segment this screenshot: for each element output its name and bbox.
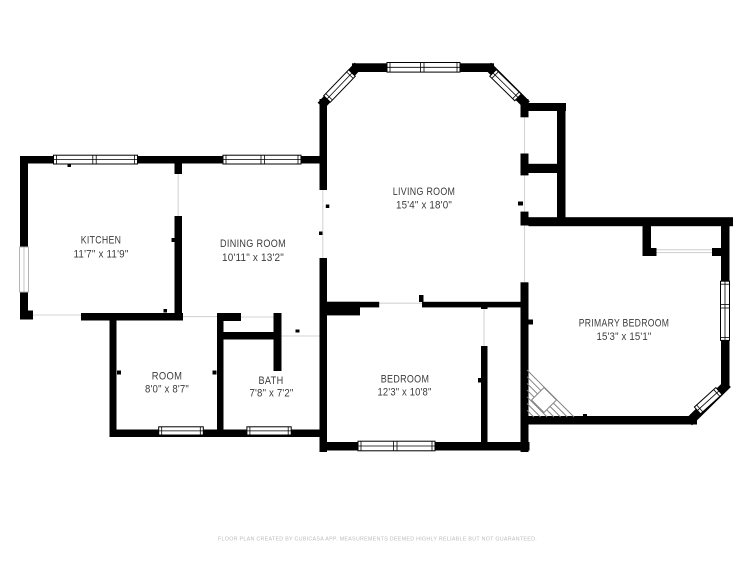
svg-text:LIVING ROOM: LIVING ROOM [393,186,456,198]
svg-text:BATH: BATH [259,375,284,387]
svg-text:8'0" x 8'7": 8'0" x 8'7" [145,383,189,395]
svg-text:7'8" x 7'2": 7'8" x 7'2" [250,388,294,400]
svg-text:10'11" x 13'2": 10'11" x 13'2" [222,252,284,264]
svg-text:15'4" x 18'0": 15'4" x 18'0" [396,200,452,212]
svg-text:PRIMARY BEDROOM: PRIMARY BEDROOM [579,318,670,330]
svg-text:FLOOR PLAN CREATED BY CUBICASA: FLOOR PLAN CREATED BY CUBICASA APP. MEAS… [218,537,537,543]
svg-text:DINING ROOM: DINING ROOM [220,238,286,250]
svg-text:KITCHEN: KITCHEN [81,235,122,247]
svg-text:BEDROOM: BEDROOM [381,373,430,385]
svg-text:15'3" x 15'1": 15'3" x 15'1" [597,331,652,343]
svg-text:11'7" x 11'9": 11'7" x 11'9" [74,248,129,260]
svg-text:ROOM: ROOM [152,370,183,382]
svg-text:12'3" x 10'8": 12'3" x 10'8" [378,386,432,398]
